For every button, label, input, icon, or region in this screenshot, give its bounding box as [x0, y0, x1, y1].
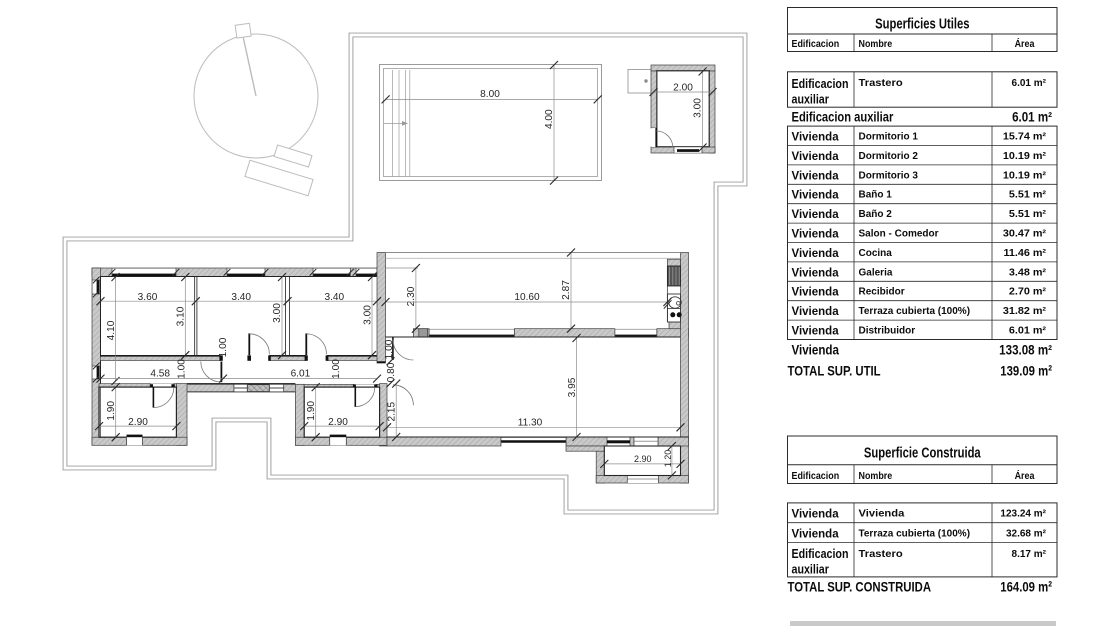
svg-text:31.82 m²: 31.82 m² [1003, 306, 1047, 317]
svg-text:Baño 1: Baño 1 [859, 190, 893, 201]
svg-text:Dormitorio 1: Dormitorio 1 [859, 132, 919, 143]
svg-text:30.47 m²: 30.47 m² [1003, 229, 1047, 240]
svg-text:3.40: 3.40 [231, 292, 251, 303]
svg-text:Cocina: Cocina [859, 248, 893, 259]
svg-text:Nombre: Nombre [859, 470, 893, 482]
svg-text:10.19 m²: 10.19 m² [1003, 151, 1047, 162]
svg-text:Área: Área [1015, 38, 1035, 50]
svg-text:3.00: 3.00 [692, 98, 703, 118]
svg-text:Terraza cubierta (100%): Terraza cubierta (100%) [859, 528, 971, 539]
svg-text:139.09 m²: 139.09 m² [1000, 362, 1052, 379]
svg-text:Vivienda: Vivienda [792, 528, 840, 540]
svg-text:15.74 m²: 15.74 m² [1003, 132, 1047, 143]
svg-text:Superficies Utiles: Superficies Utiles [875, 15, 969, 32]
svg-text:Área: Área [1015, 470, 1035, 482]
svg-text:10.19 m²: 10.19 m² [1003, 171, 1047, 182]
svg-text:8.00: 8.00 [480, 89, 500, 100]
svg-text:Superficie Construida: Superficie Construida [864, 444, 981, 461]
svg-text:4.10: 4.10 [106, 320, 117, 340]
svg-text:Vivienda: Vivienda [792, 248, 840, 260]
svg-text:Edificacion: Edificacion [792, 470, 840, 482]
svg-text:Nombre: Nombre [859, 38, 893, 50]
svg-text:Vivienda: Vivienda [792, 287, 840, 299]
svg-text:6.01: 6.01 [291, 369, 311, 380]
svg-text:6.01 m²: 6.01 m² [1009, 326, 1047, 337]
svg-text:11.30: 11.30 [518, 418, 543, 429]
svg-text:0.80: 0.80 [386, 362, 397, 382]
svg-text:Trastero: Trastero [859, 549, 904, 560]
svg-text:10.60: 10.60 [514, 292, 540, 303]
svg-text:5.51 m²: 5.51 m² [1009, 209, 1047, 220]
svg-text:1.00: 1.00 [177, 359, 188, 379]
svg-text:Vivienda: Vivienda [859, 508, 905, 519]
svg-text:Vivienda: Vivienda [792, 229, 840, 241]
svg-text:Vivienda: Vivienda [792, 132, 840, 144]
svg-text:5.51 m²: 5.51 m² [1009, 190, 1047, 201]
svg-text:2.90: 2.90 [128, 417, 148, 428]
svg-text:Recibidor: Recibidor [859, 287, 905, 298]
svg-text:1.90: 1.90 [306, 401, 317, 421]
svg-text:Edificacion: Edificacion [792, 38, 840, 50]
svg-text:Dormitorio 2: Dormitorio 2 [859, 151, 919, 162]
svg-text:2.90: 2.90 [328, 417, 348, 428]
svg-text:3.60: 3.60 [138, 292, 158, 303]
svg-text:auxiliar: auxiliar [792, 561, 830, 576]
svg-text:Vivienda: Vivienda [792, 170, 840, 182]
svg-text:3.10: 3.10 [176, 306, 187, 326]
svg-text:Vivienda: Vivienda [792, 209, 840, 221]
svg-text:3.40: 3.40 [324, 292, 344, 303]
svg-text:133.08 m²: 133.08 m² [999, 342, 1052, 358]
svg-text:2.70 m²: 2.70 m² [1009, 287, 1047, 298]
svg-text:3.00: 3.00 [362, 305, 373, 325]
svg-text:TOTAL SUP. UTIL: TOTAL SUP. UTIL [788, 362, 881, 379]
svg-text:2.30: 2.30 [406, 286, 417, 306]
svg-text:Dormitorio 3: Dormitorio 3 [859, 170, 919, 181]
svg-text:2.15: 2.15 [386, 401, 397, 421]
svg-text:32.68 m²: 32.68 m² [1006, 528, 1047, 539]
svg-text:Edificacion: Edificacion [792, 546, 849, 561]
svg-text:164.09 m²: 164.09 m² [1000, 578, 1052, 595]
svg-text:3.48 m²: 3.48 m² [1009, 268, 1047, 279]
svg-text:Edificacion auxiliar: Edificacion auxiliar [792, 109, 894, 124]
svg-text:Vivienda: Vivienda [792, 151, 840, 163]
svg-text:11.46 m²: 11.46 m² [1003, 248, 1046, 259]
svg-text:TOTAL SUP. CONSTRUIDA: TOTAL SUP. CONSTRUIDA [788, 578, 932, 595]
svg-text:8.17 m²: 8.17 m² [1012, 549, 1047, 560]
svg-text:Salon - Comedor: Salon - Comedor [859, 229, 939, 240]
svg-text:Baño 2: Baño 2 [859, 209, 893, 220]
svg-text:2.87: 2.87 [561, 280, 572, 300]
svg-text:4.58: 4.58 [150, 369, 170, 380]
svg-text:Vivienda: Vivienda [792, 326, 840, 338]
svg-text:123.24 m²: 123.24 m² [1000, 509, 1046, 520]
svg-text:Trastero: Trastero [859, 78, 904, 89]
svg-text:Distribuidor: Distribuidor [859, 326, 916, 337]
svg-text:Vivienda: Vivienda [792, 342, 840, 358]
svg-text:3.00: 3.00 [272, 303, 283, 323]
svg-text:6.01 m²: 6.01 m² [1012, 109, 1052, 125]
svg-text:Vivienda: Vivienda [792, 509, 840, 521]
svg-text:auxiliar: auxiliar [792, 91, 830, 106]
svg-text:Vivienda: Vivienda [792, 190, 840, 202]
svg-text:2.00: 2.00 [673, 83, 693, 94]
svg-text:Vivienda: Vivienda [792, 306, 840, 318]
svg-text:Terraza cubierta (100%): Terraza cubierta (100%) [859, 306, 971, 317]
svg-text:1.00: 1.00 [331, 359, 342, 379]
svg-text:1.00: 1.00 [218, 337, 229, 357]
svg-text:3.95: 3.95 [567, 377, 578, 397]
svg-text:1.90: 1.90 [106, 401, 117, 421]
svg-text:6.01 m²: 6.01 m² [1012, 78, 1047, 89]
svg-text:Vivienda: Vivienda [792, 267, 840, 279]
svg-text:Edificacion: Edificacion [792, 76, 849, 91]
svg-text:2.90: 2.90 [634, 454, 652, 464]
svg-text:Galeria: Galeria [859, 267, 893, 278]
svg-text:4.00: 4.00 [544, 109, 555, 129]
svg-text:1.00: 1.00 [384, 339, 395, 359]
svg-text:1.20: 1.20 [663, 450, 673, 468]
